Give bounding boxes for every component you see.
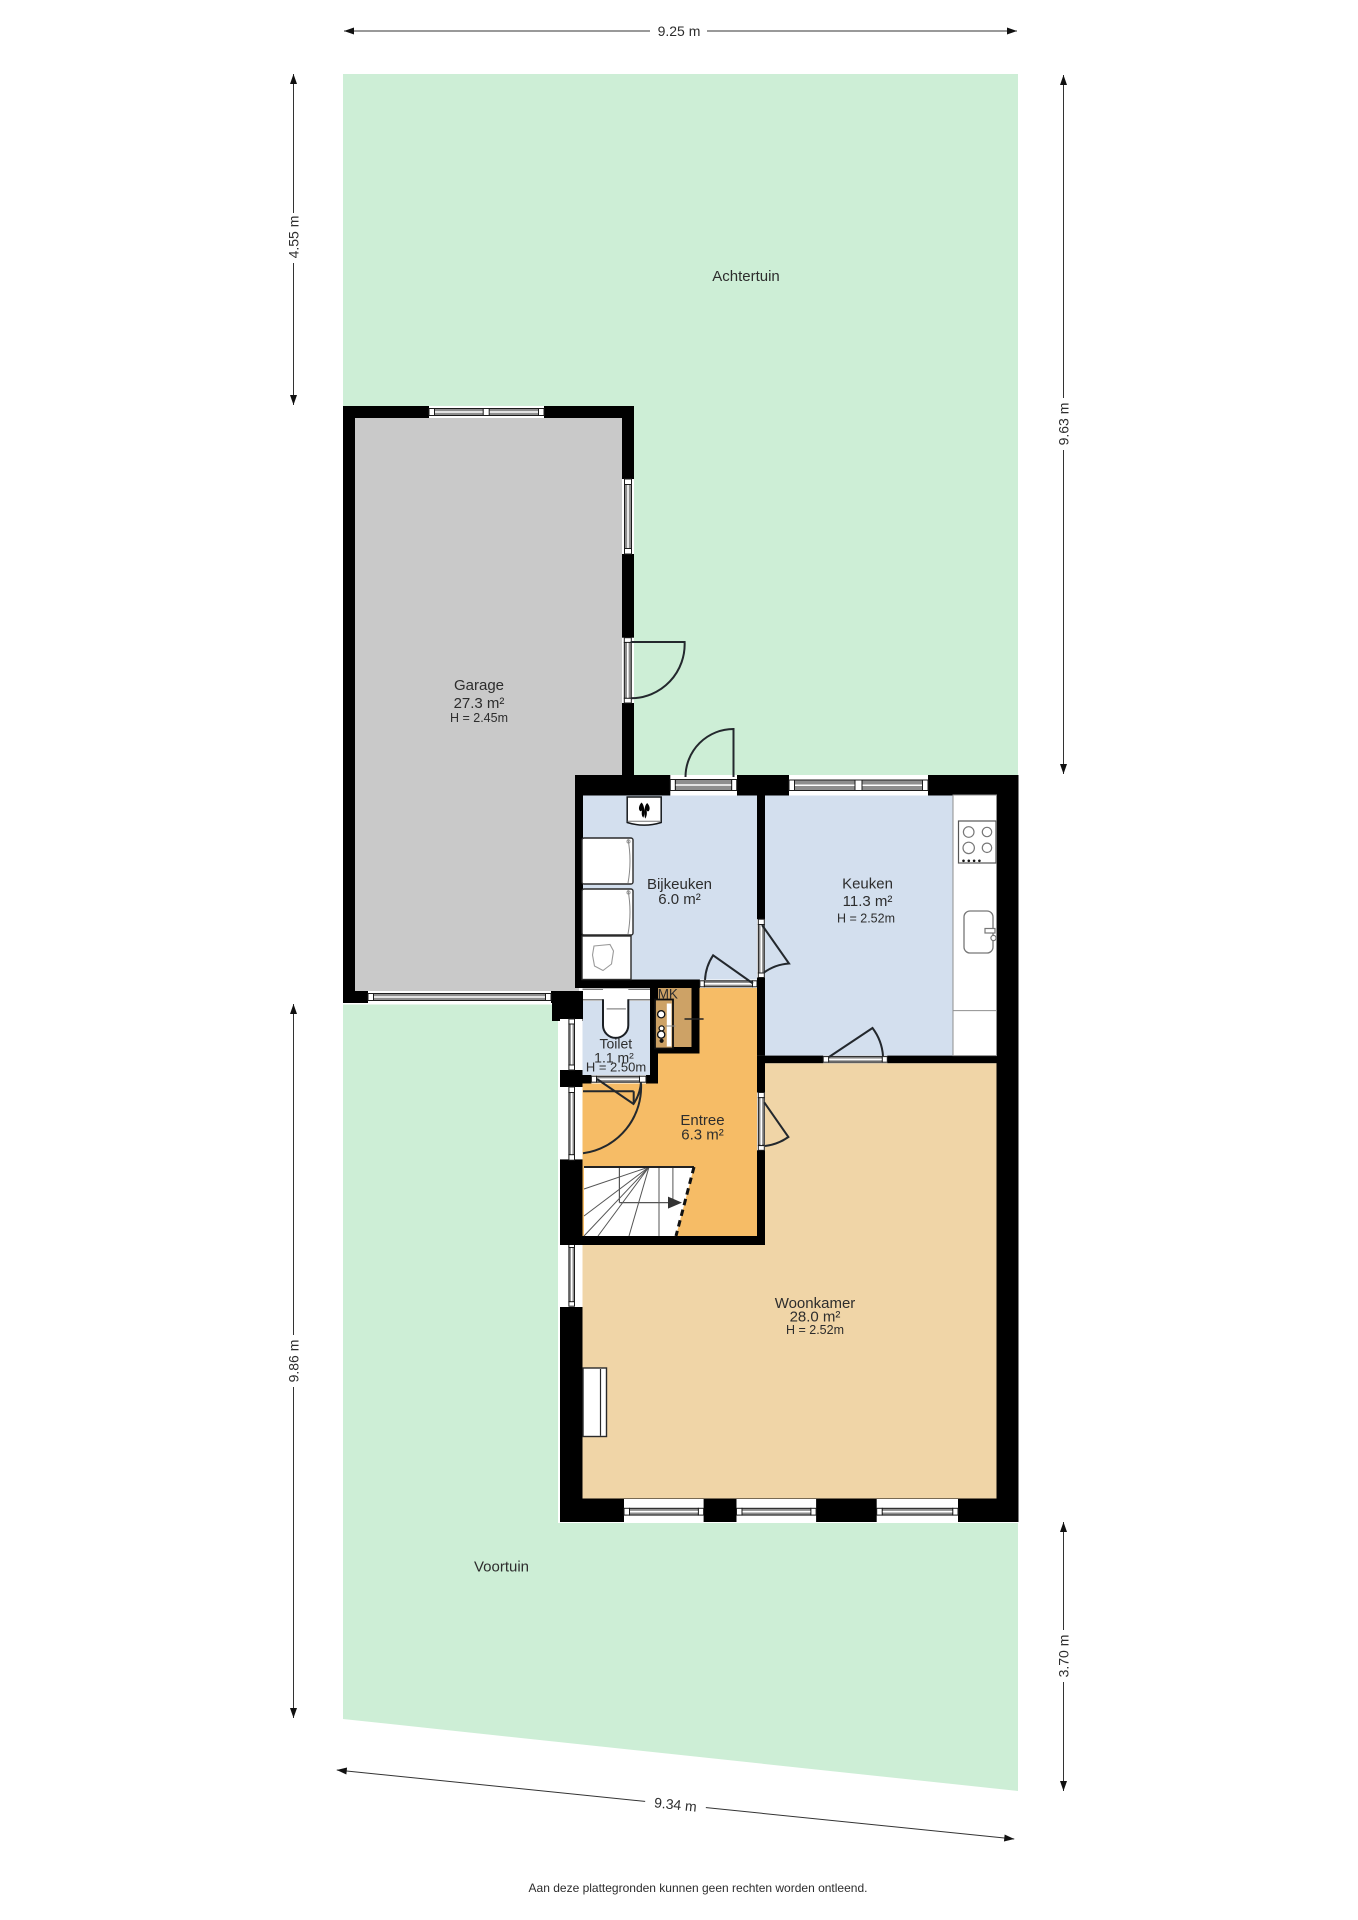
svg-text:3.70 m: 3.70 m (1056, 1635, 1072, 1678)
svg-text:27.3 m²: 27.3 m² (454, 695, 505, 712)
svg-text:4.55 m: 4.55 m (286, 216, 302, 259)
svg-text:H = 2.52m: H = 2.52m (837, 912, 895, 926)
svg-text:Garage: Garage (454, 677, 504, 694)
svg-text:Keuken: Keuken (842, 876, 893, 893)
svg-text:H = 2.45m: H = 2.45m (450, 711, 508, 725)
svg-text:Achtertuin: Achtertuin (712, 268, 780, 285)
svg-text:9.25 m: 9.25 m (658, 23, 701, 39)
svg-text:11.3 m²: 11.3 m² (843, 893, 893, 910)
svg-text:H = 2.52m: H = 2.52m (786, 1323, 844, 1337)
svg-text:9.63 m: 9.63 m (1056, 403, 1072, 446)
svg-text:H = 2.50m: H = 2.50m (586, 1060, 646, 1075)
svg-text:Voortuin: Voortuin (474, 1559, 529, 1576)
svg-text:MK: MK (658, 986, 678, 1001)
svg-text:6.0 m²: 6.0 m² (658, 891, 701, 908)
svg-text:9.86 m: 9.86 m (286, 1340, 302, 1383)
svg-text:Aan deze plattegronden kunnen: Aan deze plattegronden kunnen geen recht… (529, 1881, 868, 1895)
svg-text:6.3 m²: 6.3 m² (681, 1127, 724, 1144)
